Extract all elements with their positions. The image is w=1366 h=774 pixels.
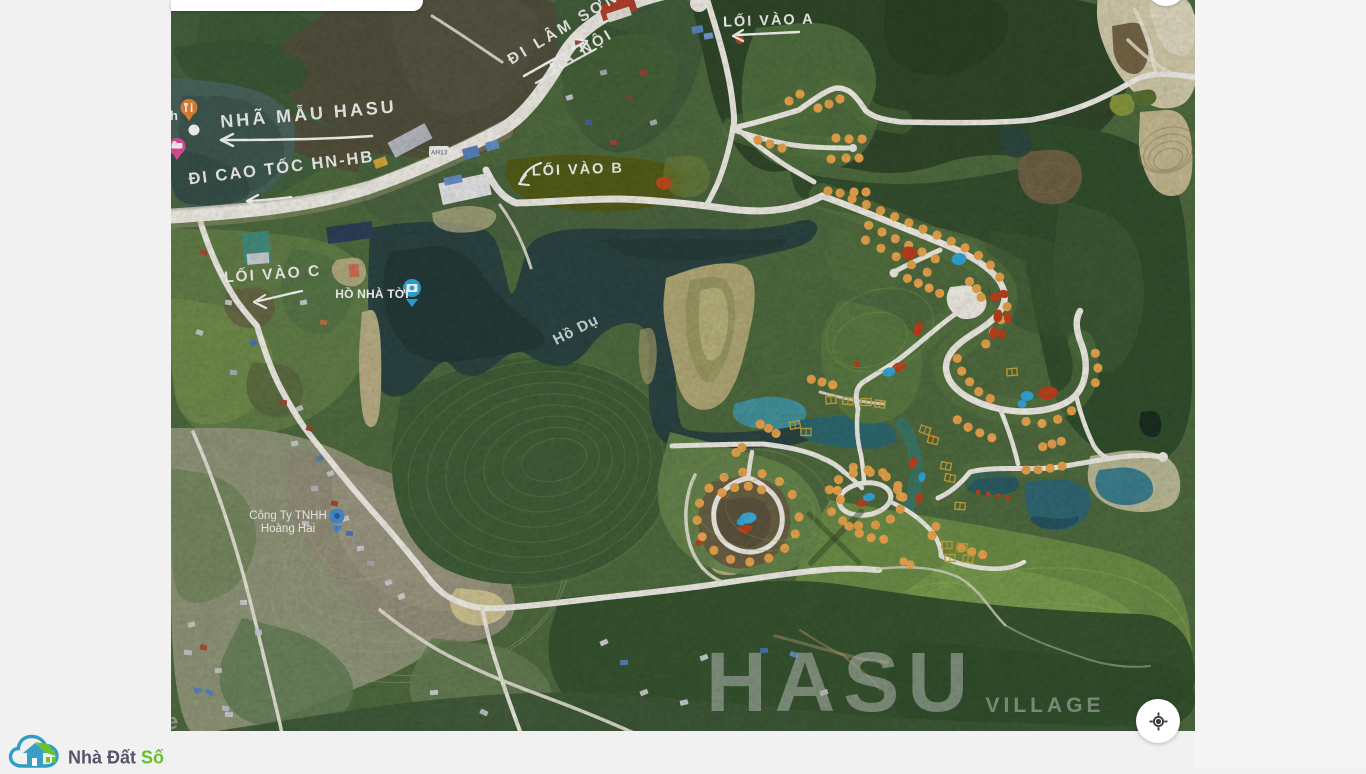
svg-text:Nhà Đất Số: Nhà Đất Số <box>68 748 164 768</box>
